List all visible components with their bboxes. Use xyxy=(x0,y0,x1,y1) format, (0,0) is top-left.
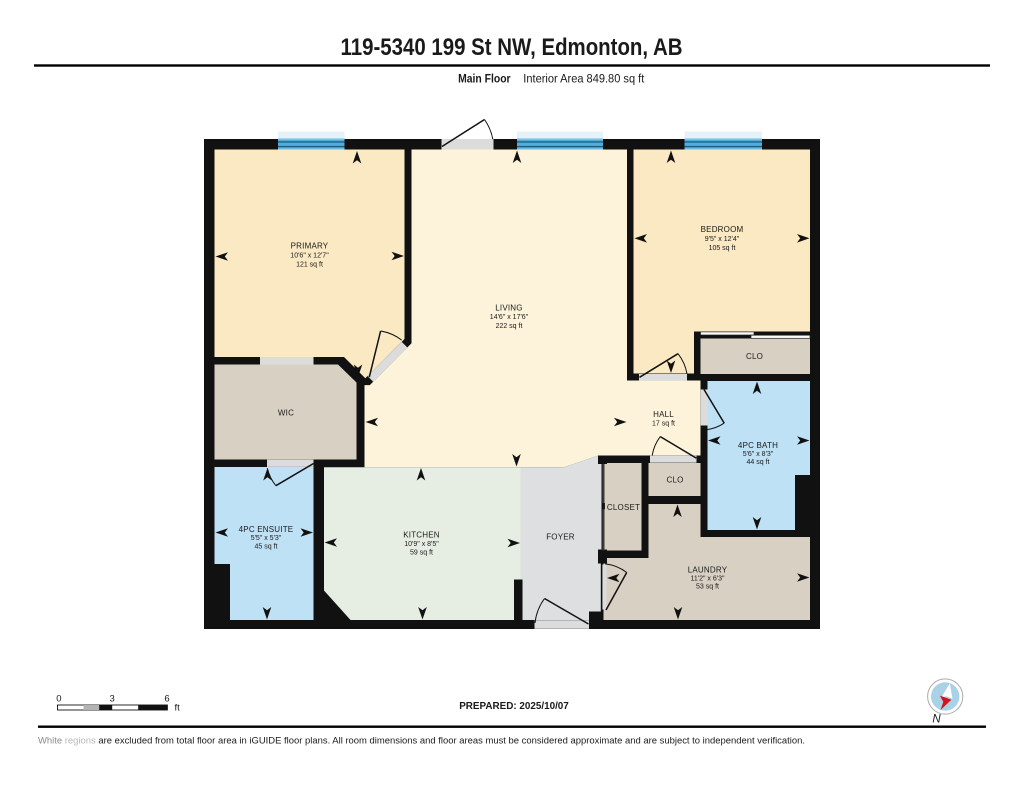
svg-text:53 sq ft: 53 sq ft xyxy=(696,584,719,591)
svg-text:FOYER: FOYER xyxy=(546,532,575,541)
svg-text:10'6" x 12'7": 10'6" x 12'7" xyxy=(290,253,329,260)
svg-text:PRIMARY: PRIMARY xyxy=(291,242,329,251)
svg-text:119-5340 199 St NW, Edmonton,: 119-5340 199 St NW, Edmonton, AB xyxy=(341,34,683,61)
svg-text:N: N xyxy=(932,714,941,726)
svg-text:PREPARED: 2025/10/07: PREPARED: 2025/10/07 xyxy=(459,701,569,712)
svg-text:5'5" x 5'3": 5'5" x 5'3" xyxy=(251,535,282,542)
svg-text:5'6" x 8'3": 5'6" x 8'3" xyxy=(743,451,774,458)
svg-text:11'2" x 6'3": 11'2" x 6'3" xyxy=(691,575,725,582)
svg-text:9'5" x 12'4": 9'5" x 12'4" xyxy=(705,236,740,243)
svg-text:44 sq ft: 44 sq ft xyxy=(747,459,770,466)
svg-text:4PC ENSUITE: 4PC ENSUITE xyxy=(239,525,294,534)
svg-text:ft: ft xyxy=(175,703,181,714)
svg-text:45 sq ft: 45 sq ft xyxy=(255,544,278,551)
svg-text:HALL: HALL xyxy=(653,410,674,419)
svg-text:4PC BATH: 4PC BATH xyxy=(738,441,778,450)
svg-text:17 sq ft: 17 sq ft xyxy=(652,421,675,428)
svg-text:BEDROOM: BEDROOM xyxy=(701,225,744,234)
svg-text:Main Floor: Main Floor xyxy=(458,71,511,85)
svg-text:121 sq ft: 121 sq ft xyxy=(296,262,323,269)
svg-text:LAUNDRY: LAUNDRY xyxy=(688,565,728,574)
svg-text:3: 3 xyxy=(110,693,115,704)
svg-text:CLO: CLO xyxy=(666,475,683,484)
svg-text:KITCHEN: KITCHEN xyxy=(403,531,440,540)
svg-text:10'9" x 8'5": 10'9" x 8'5" xyxy=(404,541,439,548)
svg-text:14'6" x 17'6": 14'6" x 17'6" xyxy=(490,314,529,321)
svg-text:Interior Area 849.80 sq ft: Interior Area 849.80 sq ft xyxy=(523,71,645,85)
svg-text:0: 0 xyxy=(56,693,61,704)
svg-text:CLOSET: CLOSET xyxy=(607,503,640,512)
svg-text:59 sq ft: 59 sq ft xyxy=(410,549,433,556)
svg-text:WIC: WIC xyxy=(278,408,294,417)
svg-text:CLO: CLO xyxy=(746,352,763,361)
svg-text:LIVING: LIVING xyxy=(495,303,522,312)
svg-text:105 sq ft: 105 sq ft xyxy=(709,245,736,252)
svg-text:White regions are excluded fro: White regions are excluded from total fl… xyxy=(38,736,805,746)
svg-text:6: 6 xyxy=(164,693,169,704)
svg-text:222 sq ft: 222 sq ft xyxy=(496,323,523,330)
